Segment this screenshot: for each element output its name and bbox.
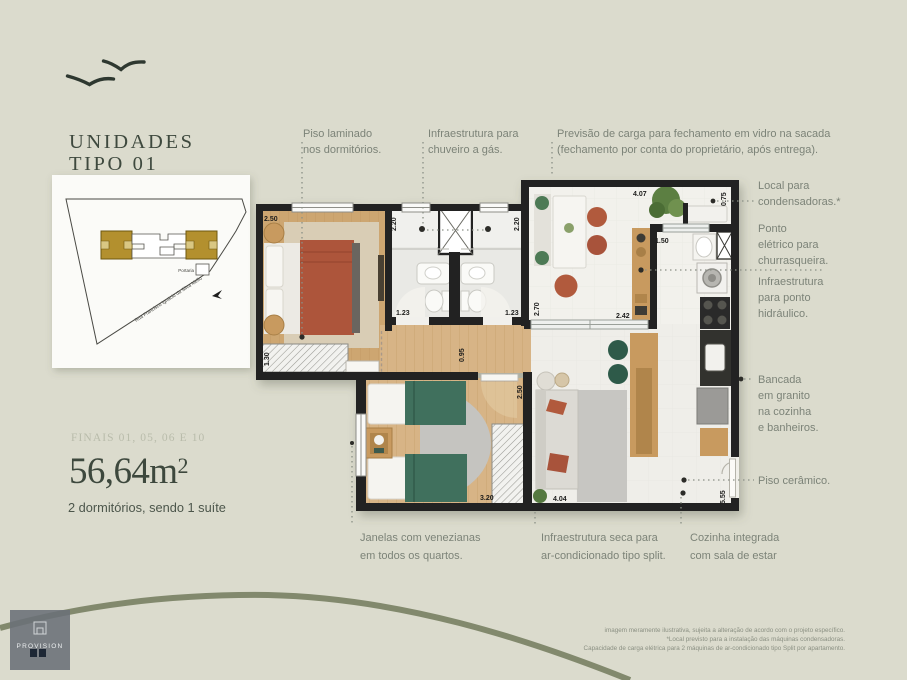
svg-text:2.42: 2.42 [616, 313, 630, 320]
svg-text:churrasqueira.: churrasqueira. [758, 255, 828, 267]
svg-text:TIPO 01: TIPO 01 [69, 153, 158, 175]
svg-text:Piso cerâmico.: Piso cerâmico. [758, 475, 830, 487]
svg-text:Local para: Local para [758, 180, 810, 192]
svg-text:1.23: 1.23 [505, 310, 519, 317]
svg-text:56,64m2: 56,64m2 [69, 451, 188, 492]
svg-text:1.50: 1.50 [655, 238, 669, 245]
svg-text:2.20: 2.20 [391, 217, 398, 231]
svg-text:na cozinha: na cozinha [758, 406, 812, 418]
svg-text:Janelas com venezianas: Janelas com venezianas [360, 532, 481, 544]
svg-text:Capacidade de carga elétrica p: Capacidade de carga elétrica para 2 máqu… [584, 645, 846, 652]
svg-text:hidráulico.: hidráulico. [758, 308, 808, 320]
svg-text:nos dormitórios.: nos dormitórios. [303, 144, 381, 156]
svg-text:Piso laminado: Piso laminado [303, 128, 372, 140]
svg-text:Portaria: Portaria [178, 268, 194, 273]
svg-text:1.30: 1.30 [264, 352, 271, 366]
svg-text:*Local previsto para a instala: *Local previsto para a instalação das má… [666, 636, 845, 643]
svg-text:Previsão de carga para fechame: Previsão de carga para fechamento em vid… [557, 128, 831, 140]
svg-text:com sala de estar: com sala de estar [690, 550, 777, 562]
svg-text:ar-condicionado tipo split.: ar-condicionado tipo split. [541, 550, 666, 562]
svg-text:0.75: 0.75 [721, 192, 728, 206]
svg-text:Infraestrutura: Infraestrutura [758, 276, 824, 288]
svg-text:0.95: 0.95 [459, 348, 466, 362]
svg-text:2.50: 2.50 [517, 385, 524, 399]
svg-text:2.70: 2.70 [534, 302, 541, 316]
svg-text:Infraestrutura seca para: Infraestrutura seca para [541, 532, 659, 544]
svg-text:para ponto: para ponto [758, 292, 811, 304]
svg-text:UNIDADES: UNIDADES [69, 131, 195, 153]
svg-text:Bancada: Bancada [758, 374, 802, 386]
svg-text:condensadoras.*: condensadoras.* [758, 196, 841, 208]
svg-text:4.07: 4.07 [633, 191, 647, 198]
svg-text:2.50: 2.50 [264, 216, 278, 223]
svg-text:em todos os quartos.: em todos os quartos. [360, 550, 463, 562]
svg-text:5.55: 5.55 [720, 490, 727, 504]
svg-text:Cozinha integrada: Cozinha integrada [690, 532, 780, 544]
svg-text:em granito: em granito [758, 390, 810, 402]
svg-text:PROVISION: PROVISION [17, 643, 64, 650]
svg-text:chuveiro a gás.: chuveiro a gás. [428, 144, 503, 156]
svg-text:1.23: 1.23 [396, 310, 410, 317]
svg-text:2.20: 2.20 [514, 217, 521, 231]
svg-text:(fechamento por conta do propr: (fechamento por conta do proprietário, a… [557, 144, 818, 156]
svg-text:2 dormitórios, sendo 1 suíte: 2 dormitórios, sendo 1 suíte [68, 500, 226, 515]
svg-text:imagem meramente ilustrativa,: imagem meramente ilustrativa, sujeita a … [605, 627, 846, 634]
svg-text:FINAIS 01, 05, 06 E 10: FINAIS 01, 05, 06 E 10 [71, 432, 205, 444]
svg-text:Infraestrutura para: Infraestrutura para [428, 128, 519, 140]
svg-text:4.04: 4.04 [553, 496, 567, 503]
svg-text:Ponto: Ponto [758, 223, 787, 235]
svg-text:elétrico para: elétrico para [758, 239, 819, 251]
svg-text:3.20: 3.20 [480, 495, 494, 502]
svg-text:e banheiros.: e banheiros. [758, 422, 819, 434]
